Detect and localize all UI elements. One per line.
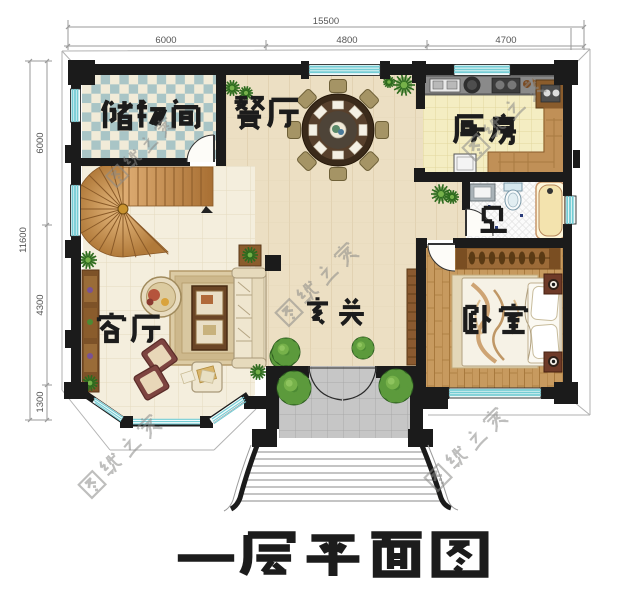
svg-text:11600: 11600 bbox=[18, 227, 29, 253]
svg-text:15500: 15500 bbox=[313, 16, 339, 27]
svg-text:6000: 6000 bbox=[35, 132, 46, 153]
svg-text:4300: 4300 bbox=[35, 294, 46, 315]
svg-text:4700: 4700 bbox=[495, 35, 516, 46]
svg-text:6000: 6000 bbox=[155, 35, 176, 46]
svg-text:1300: 1300 bbox=[35, 391, 46, 412]
svg-text:4800: 4800 bbox=[336, 35, 357, 46]
